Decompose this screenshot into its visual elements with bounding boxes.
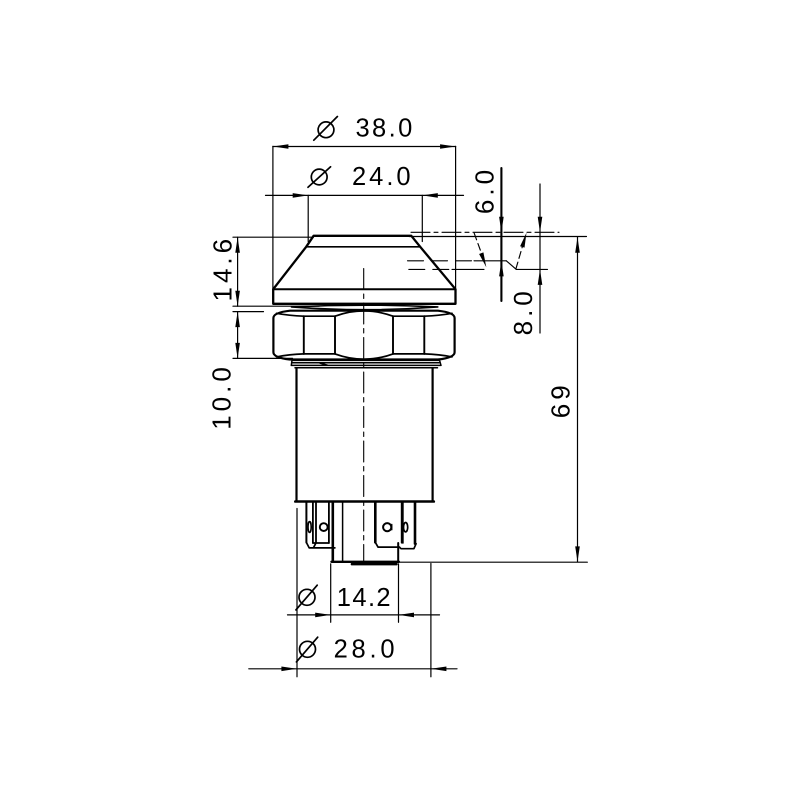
svg-text:14.6: 14.6	[208, 235, 238, 302]
svg-text:10.0: 10.0	[206, 363, 236, 430]
svg-text:28.0: 28.0	[334, 635, 399, 663]
svg-text:69: 69	[546, 381, 576, 418]
svg-text:6.0: 6.0	[470, 166, 500, 214]
svg-text:24.0: 24.0	[352, 163, 414, 191]
svg-text:38.0: 38.0	[355, 114, 414, 142]
svg-text:14.2: 14.2	[337, 584, 392, 612]
svg-text:8.0: 8.0	[508, 287, 538, 335]
